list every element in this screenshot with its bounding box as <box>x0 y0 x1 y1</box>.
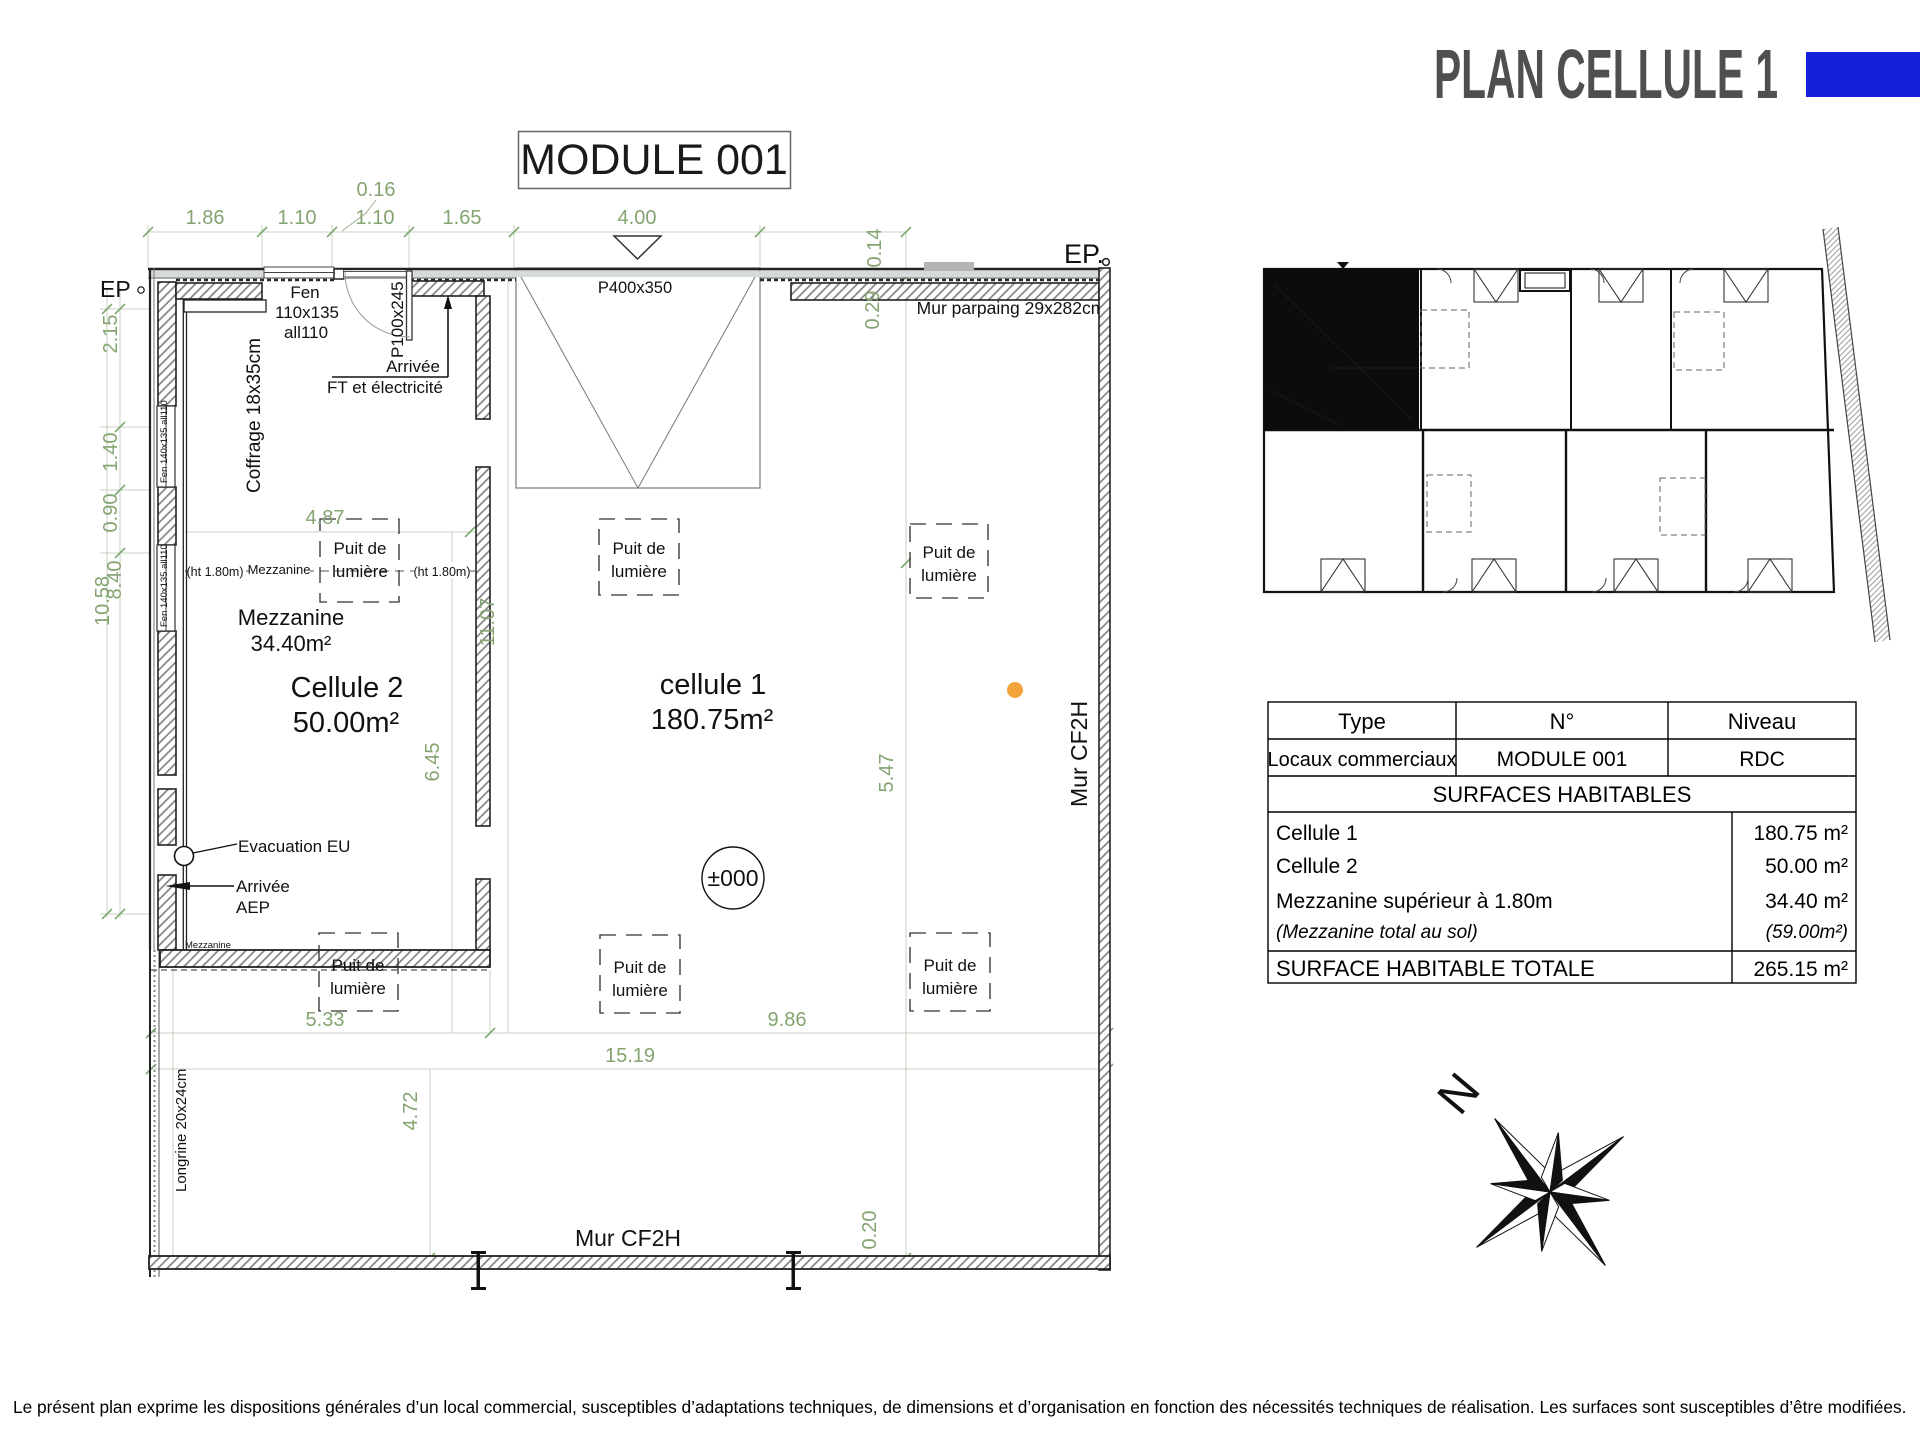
svg-text:N: N <box>1428 1064 1491 1125</box>
svg-text:Mezzanine: Mezzanine <box>248 562 311 577</box>
svg-text:2.15: 2.15 <box>100 315 122 354</box>
svg-text:Fen 140x135 all110: Fen 140x135 all110 <box>159 544 170 627</box>
svg-text:(ht 1.80m): (ht 1.80m) <box>187 565 244 579</box>
svg-text:180.75 m²: 180.75 m² <box>1753 822 1848 845</box>
svg-text:SURFACE HABITABLE TOTALE: SURFACE HABITABLE TOTALE <box>1276 956 1595 981</box>
svg-text:4.72: 4.72 <box>400 1092 422 1131</box>
svg-text:Mur CF2H: Mur CF2H <box>575 1225 681 1251</box>
svg-text:P400x350: P400x350 <box>598 279 672 297</box>
svg-text:Mezzanine supérieur à 1.80m: Mezzanine supérieur à 1.80m <box>1276 890 1553 913</box>
svg-text:50.00m²: 50.00m² <box>293 707 400 739</box>
svg-text:265.15 m²: 265.15 m² <box>1753 958 1848 981</box>
svg-text:(59.00m²): (59.00m²) <box>1766 922 1848 943</box>
svg-text:0.90: 0.90 <box>100 494 122 533</box>
svg-text:4.87: 4.87 <box>306 507 345 529</box>
svg-text:0.29: 0.29 <box>862 291 884 330</box>
svg-text:Mezzanine: Mezzanine <box>238 605 344 630</box>
svg-text:110x135: 110x135 <box>275 303 339 322</box>
svg-text:Locaux commerciaux: Locaux commerciaux <box>1268 749 1457 771</box>
svg-text:lumière: lumière <box>611 562 667 581</box>
svg-text:(Mezzanine total au sol): (Mezzanine total au sol) <box>1276 922 1478 943</box>
svg-text:FT et électricité: FT et électricité <box>327 378 443 397</box>
svg-text:MODULE 001: MODULE 001 <box>520 136 788 184</box>
svg-text:5.47: 5.47 <box>876 754 898 793</box>
svg-text:lumière: lumière <box>332 562 388 581</box>
svg-text:34.40 m²: 34.40 m² <box>1765 890 1848 913</box>
svg-text:0.20: 0.20 <box>859 1211 881 1250</box>
svg-text:1.10: 1.10 <box>356 207 395 229</box>
svg-text:PLAN CELLULE 1: PLAN CELLULE 1 <box>1434 35 1778 113</box>
svg-text:EP.: EP. <box>1064 239 1104 269</box>
svg-text:1.86: 1.86 <box>186 207 225 229</box>
svg-text:6.45: 6.45 <box>422 743 444 782</box>
svg-text:RDC: RDC <box>1739 748 1785 771</box>
svg-text:Longrine 20x24cm: Longrine 20x24cm <box>173 1069 190 1192</box>
svg-text:Type: Type <box>1338 709 1386 734</box>
svg-text:Niveau: Niveau <box>1728 709 1796 734</box>
svg-text:34.40m²: 34.40m² <box>251 631 332 656</box>
svg-text:Fen 140x135 all110: Fen 140x135 all110 <box>159 400 170 483</box>
svg-text:180.75m²: 180.75m² <box>651 704 774 736</box>
svg-text:(ht 1.80m): (ht 1.80m) <box>414 565 471 579</box>
svg-text:MODULE 001: MODULE 001 <box>1497 748 1628 771</box>
svg-text:Fen: Fen <box>290 283 319 302</box>
svg-text:Puit de: Puit de <box>334 539 387 558</box>
svg-text:Puit de: Puit de <box>614 958 667 977</box>
svg-text:Puit de: Puit de <box>613 539 666 558</box>
svg-text:AEP: AEP <box>236 898 270 917</box>
svg-text:0.16: 0.16 <box>357 179 396 201</box>
svg-text:Mur parpaing 29x282cm: Mur parpaing 29x282cm <box>917 298 1106 318</box>
svg-text:P100x245: P100x245 <box>388 281 407 358</box>
svg-text:Mur CF2H: Mur CF2H <box>1066 701 1092 807</box>
svg-text:Evacuation EU: Evacuation EU <box>238 837 350 856</box>
svg-text:Cellule 2: Cellule 2 <box>291 672 404 704</box>
svg-text:Mezzanine: Mezzanine <box>185 940 231 951</box>
svg-text:±000: ±000 <box>708 865 759 891</box>
svg-text:5.33: 5.33 <box>306 1009 345 1031</box>
svg-text:11.07: 11.07 <box>477 598 499 647</box>
svg-text:lumière: lumière <box>921 566 977 585</box>
svg-text:1.10: 1.10 <box>278 207 317 229</box>
svg-text:lumière: lumière <box>922 979 978 998</box>
svg-text:lumière: lumière <box>330 979 386 998</box>
svg-text:EP: EP <box>100 276 131 302</box>
svg-text:Coffrage 18x35cm: Coffrage 18x35cm <box>244 338 265 493</box>
svg-text:Puit de: Puit de <box>332 956 385 975</box>
svg-text:Cellule 2: Cellule 2 <box>1276 855 1358 878</box>
svg-text:Le présent plan exprime les di: Le présent plan exprime les dispositions… <box>13 1397 1906 1417</box>
svg-text:Puit de: Puit de <box>923 543 976 562</box>
svg-text:1.65: 1.65 <box>443 207 482 229</box>
svg-text:Arrivée: Arrivée <box>236 877 290 896</box>
svg-text:15.19: 15.19 <box>605 1045 655 1067</box>
svg-text:Puit de: Puit de <box>924 956 977 975</box>
svg-text:Arrivée: Arrivée <box>386 357 440 376</box>
svg-text:50.00 m²: 50.00 m² <box>1765 855 1848 878</box>
svg-text:4.00: 4.00 <box>618 207 657 229</box>
svg-text:lumière: lumière <box>612 981 668 1000</box>
svg-text:N°: N° <box>1550 709 1575 734</box>
svg-text:Cellule 1: Cellule 1 <box>1276 822 1358 845</box>
svg-text:1.40: 1.40 <box>100 433 122 472</box>
svg-text:0.14: 0.14 <box>864 229 886 268</box>
svg-text:cellule 1: cellule 1 <box>660 669 766 701</box>
svg-text:SURFACES HABITABLES: SURFACES HABITABLES <box>1433 782 1692 807</box>
svg-text:10.58: 10.58 <box>92 576 114 626</box>
svg-text:9.86: 9.86 <box>768 1009 807 1031</box>
svg-text:all110: all110 <box>284 323 328 342</box>
